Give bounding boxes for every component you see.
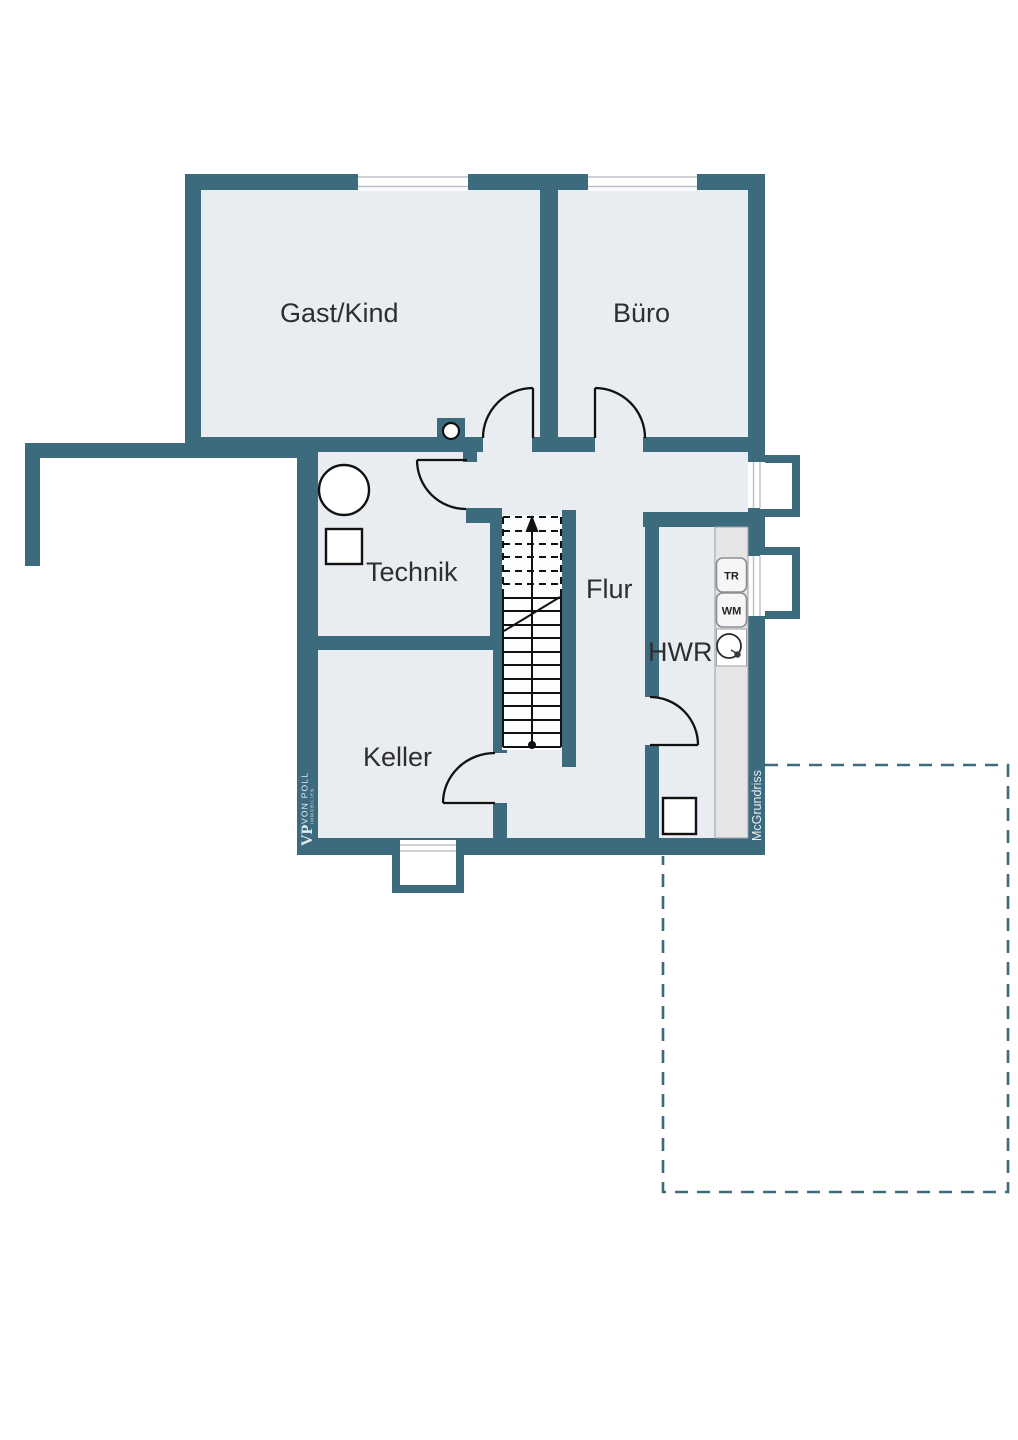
wall-left-upper bbox=[185, 174, 201, 440]
window-top-left bbox=[358, 172, 468, 191]
window-well-upper bbox=[748, 455, 800, 517]
window-top-right bbox=[588, 172, 697, 191]
von-poll-monogram: VP bbox=[299, 824, 316, 846]
sink-symbol bbox=[717, 629, 747, 666]
watermark-text: McGrundriss bbox=[750, 770, 764, 841]
room-label-buero: Büro bbox=[613, 298, 670, 328]
wall-room-divider bbox=[540, 190, 558, 437]
window-well-lower bbox=[748, 547, 800, 619]
wall-exterior-spur-vertical bbox=[25, 443, 40, 566]
chimney-symbol bbox=[443, 423, 459, 439]
von-poll-name: VON POLL bbox=[300, 772, 310, 824]
technik-unit-symbol bbox=[326, 529, 362, 564]
von-poll-sub: IMMOBILIEN bbox=[310, 788, 315, 824]
stair-walk-line-start-dot bbox=[528, 741, 536, 749]
appliance-strip: TR WM bbox=[715, 527, 748, 838]
dryer-label: TR bbox=[724, 571, 739, 583]
wall-stair-right bbox=[562, 510, 576, 767]
staircase bbox=[502, 515, 562, 750]
hwr-floor-unit-symbol bbox=[663, 798, 696, 834]
room-label-hwr: HWR bbox=[648, 637, 712, 667]
floor-plan-drawing: TR WM Gast/Kind Büro Technik Flur HWR Ke… bbox=[0, 0, 1018, 1440]
wall-hwr-left-upper bbox=[645, 512, 659, 697]
window-well-bottom bbox=[392, 840, 464, 893]
room-label-gast-kind: Gast/Kind bbox=[280, 298, 399, 328]
wall-keller-door-stub bbox=[493, 803, 507, 838]
wall-buero-bottom bbox=[643, 437, 748, 452]
watermark-group: McGrundriss bbox=[750, 770, 764, 841]
room-label-flur: Flur bbox=[586, 574, 633, 604]
washer-label: WM bbox=[722, 606, 742, 618]
room-label-technik: Technik bbox=[366, 557, 458, 587]
boiler-tank-symbol bbox=[319, 465, 369, 515]
wall-stair-left-upper bbox=[490, 515, 502, 650]
room-label-keller: Keller bbox=[363, 742, 432, 772]
wall-bottom bbox=[297, 838, 765, 855]
floor-plan-page: TR WM Gast/Kind Büro Technik Flur HWR Ke… bbox=[0, 0, 1018, 1440]
wall-technik-keller-divider bbox=[297, 636, 502, 650]
wall-exterior-spur-horizontal bbox=[25, 443, 310, 458]
wall-hwr-left-lower bbox=[645, 745, 659, 838]
wall-divider-foot bbox=[532, 437, 595, 452]
